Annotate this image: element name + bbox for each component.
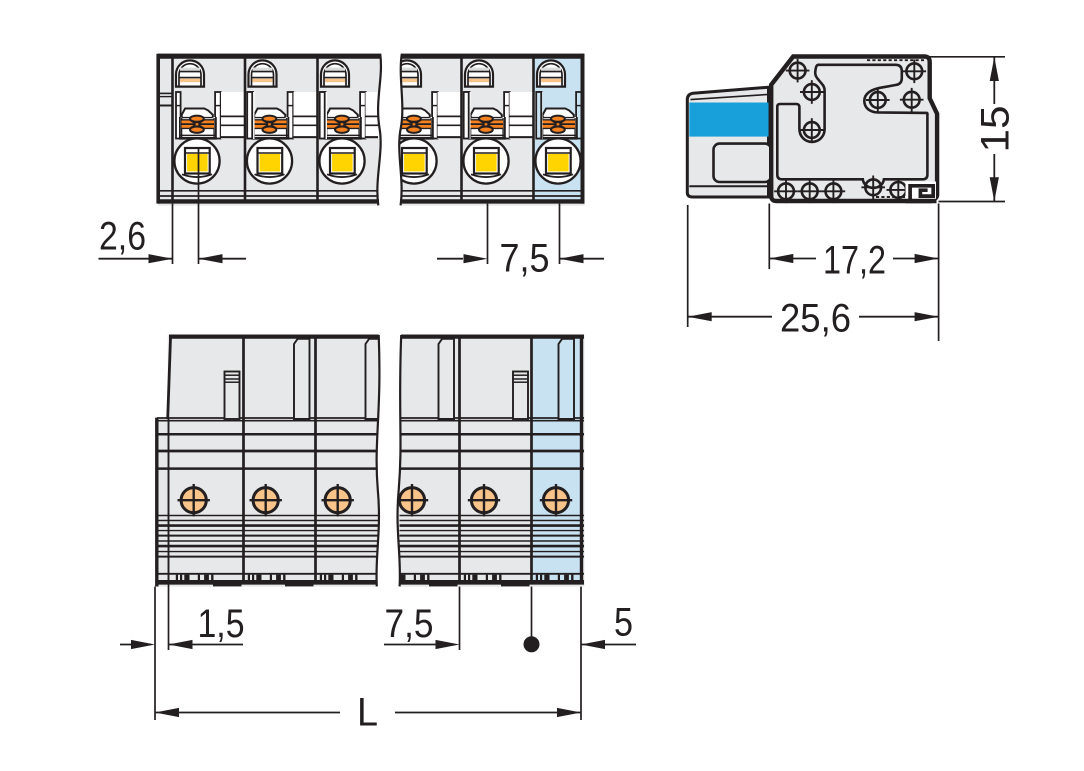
svg-text:L: L xyxy=(357,691,378,735)
svg-text:7,5: 7,5 xyxy=(385,602,434,646)
svg-text:15: 15 xyxy=(974,106,1018,153)
svg-text:25,6: 25,6 xyxy=(780,297,851,341)
svg-text:7,5: 7,5 xyxy=(500,237,550,281)
svg-text:1,5: 1,5 xyxy=(198,602,245,646)
svg-text:2,6: 2,6 xyxy=(99,215,146,259)
svg-text:17,2: 17,2 xyxy=(823,239,886,283)
svg-text:5: 5 xyxy=(614,601,633,645)
